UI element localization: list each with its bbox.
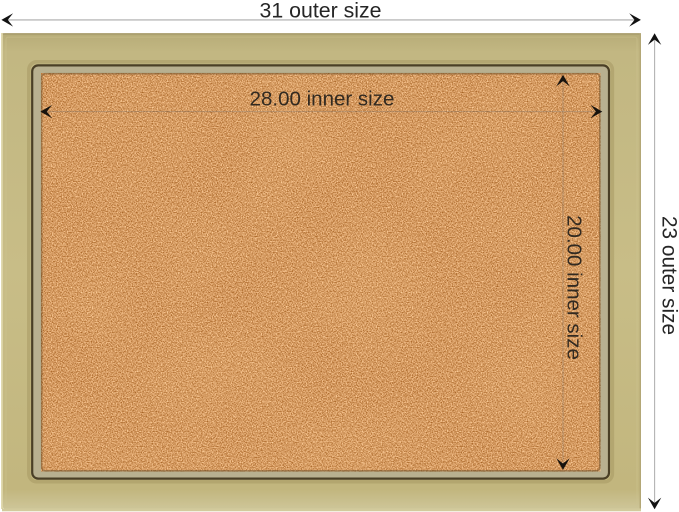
svg-text:28.00 inner size: 28.00 inner size	[250, 88, 395, 111]
svg-text:23 outer size: 23 outer size	[657, 216, 679, 335]
svg-text:31 outer size: 31 outer size	[260, 0, 382, 23]
svg-text:20.00 inner size: 20.00 inner size	[562, 215, 585, 360]
